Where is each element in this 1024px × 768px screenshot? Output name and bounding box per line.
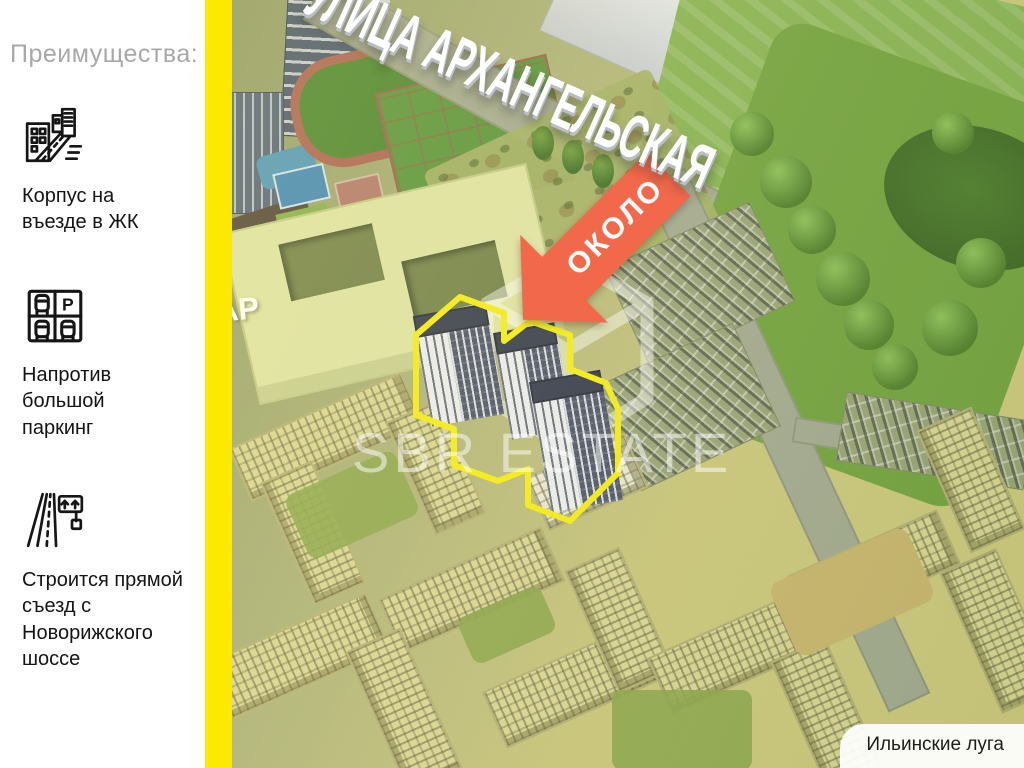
area-name-badge: Ильинские луга <box>840 724 1024 768</box>
tree <box>730 112 774 156</box>
residential-block <box>939 548 1024 714</box>
sidebar-title: Преимущества: <box>10 40 195 69</box>
advantage-item-parking: P Напротив большой паркинг <box>10 282 195 441</box>
yellow-divider <box>205 0 232 768</box>
tree <box>922 300 978 356</box>
watermark-text: SBR ESTATE <box>352 420 732 485</box>
tree <box>760 156 812 208</box>
svg-text:P: P <box>62 294 74 314</box>
advantage-label: Корпус на въезде в ЖК <box>22 183 195 236</box>
tree <box>844 300 894 350</box>
residential-block <box>345 627 462 768</box>
clipped-street-label: АР <box>232 290 261 330</box>
buildings-road-icon <box>22 103 88 169</box>
area-name-text: Ильинские луга <box>866 734 1004 756</box>
tree <box>932 112 974 154</box>
tree <box>788 206 836 254</box>
aerial-map: АР <box>232 0 1024 768</box>
tree <box>872 344 918 390</box>
advantage-item-highway: Строится прямой съезд с Новорижского шос… <box>10 487 195 673</box>
courtyard <box>278 223 385 301</box>
highway-exit-icon <box>22 487 88 553</box>
parking-icon: P <box>22 282 88 348</box>
advantages-sidebar: Преимущества: Корпус на въезде в ЖК <box>0 0 205 768</box>
tree <box>816 252 870 306</box>
slide: Преимущества: Корпус на въезде в ЖК <box>0 0 1024 768</box>
courtyard-green <box>612 690 752 768</box>
advantage-item-building: Корпус на въезде в ЖК <box>10 103 195 236</box>
advantage-label: Напротив большой паркинг <box>22 362 195 441</box>
arrow-label: ОКОЛО <box>560 171 671 282</box>
tennis-court <box>272 163 331 210</box>
advantage-label: Строится прямой съезд с Новорижского шос… <box>22 567 195 673</box>
tree <box>956 238 1006 288</box>
